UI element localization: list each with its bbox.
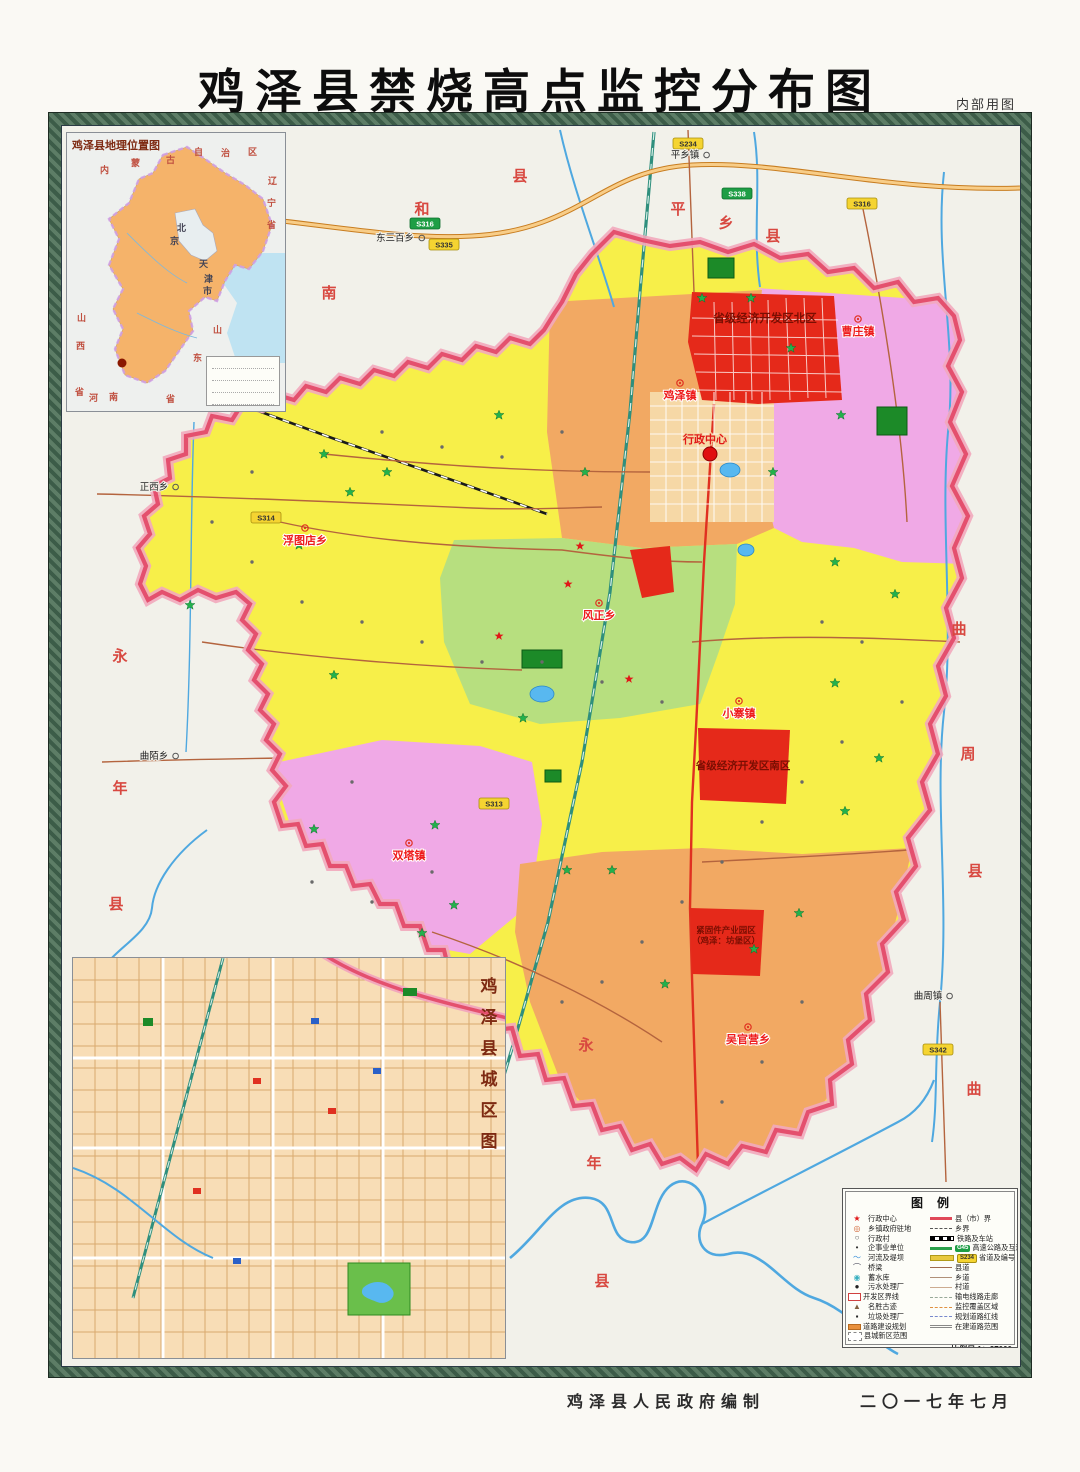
legend-item: 县（市）界	[930, 1214, 1012, 1224]
township-seat-dot	[857, 318, 859, 320]
inset-region-char: 河	[89, 391, 98, 404]
legend-item-label: 桥梁	[868, 1263, 882, 1273]
legend-line-sample	[930, 1247, 952, 1251]
neighbor-county-char: 永	[111, 647, 128, 665]
neighbor-county-char: 平	[670, 201, 685, 218]
external-town-label: 曲周镇	[914, 990, 943, 1002]
inset-region-char: 省	[166, 392, 175, 405]
village-dot	[300, 600, 303, 603]
inset-region-char: 京	[170, 234, 179, 247]
village-dot	[720, 860, 723, 863]
legend-item: 在建道路范围	[930, 1322, 1012, 1332]
ornate-border-frame: S316S338S335S316S314S234S342S313 鸡泽镇曹庄镇浮…	[48, 112, 1032, 1378]
inset-region-char: 市	[203, 284, 212, 297]
inset-region-char: 东	[193, 351, 202, 364]
inset-region-char: 省	[75, 385, 84, 398]
legend-item-label: 在建道路范围	[955, 1322, 998, 1332]
legend-item: ◎乡镇政府驻地	[848, 1224, 930, 1234]
city-inset-title-char: 县	[479, 1034, 499, 1059]
map-sheet: 鸡泽县禁烧高点监控分布图 内部用图	[0, 0, 1080, 1472]
village-dot	[430, 870, 433, 873]
inset-region-char: 北	[177, 221, 186, 234]
village-dot	[640, 940, 643, 943]
legend-symbol-icon: ●	[848, 1283, 866, 1291]
inset-legend	[206, 356, 280, 406]
village-dot	[380, 430, 383, 433]
township-label: 吴官营乡	[726, 1032, 770, 1046]
city-inset-title-char: 城	[479, 1065, 499, 1090]
village-dot	[800, 780, 803, 783]
village-dot	[900, 700, 903, 703]
city-inset-title-char: 鸡	[479, 972, 499, 997]
legend-line-sample	[930, 1277, 952, 1278]
legend-item-label: 乡镇政府驻地	[868, 1224, 911, 1234]
legend-item-label: 蓄水库	[868, 1273, 890, 1283]
legend-symbol-icon: ◉	[848, 1274, 866, 1282]
village-dot	[660, 700, 663, 703]
legend-line-sample	[930, 1255, 954, 1261]
inset-region-char: 内	[100, 163, 109, 176]
village-dot	[840, 740, 843, 743]
legend-item-label: 高速公路及互通	[972, 1243, 1018, 1253]
village-dot	[250, 560, 253, 563]
legend-item: ▪垃圾处理厂	[848, 1312, 930, 1322]
neighbor-county-char: 县	[108, 896, 123, 913]
township-seat-dot	[304, 527, 306, 529]
road-number-text: S338	[728, 190, 746, 199]
legend-symbol-shape	[848, 1332, 862, 1341]
legend-item: G45高速公路及互通	[930, 1243, 1012, 1253]
village-dot	[680, 900, 683, 903]
legend-line-sample	[930, 1287, 952, 1288]
external-town-label: 平乡镇	[671, 149, 700, 161]
legend-item: 乡界	[930, 1224, 1012, 1234]
legend-line-sample	[930, 1236, 954, 1241]
neighbor-county-char: 县	[594, 1273, 609, 1290]
village-dot	[310, 880, 313, 883]
legend-symbol-icon: ▪	[848, 1313, 866, 1321]
township-label: 浮图店乡	[283, 533, 327, 547]
inset-region-char: 区	[248, 145, 257, 158]
legend-item: ▲名胜古迹	[848, 1302, 930, 1312]
inset-region-char: 西	[76, 339, 85, 352]
neighbor-county-char: 永	[577, 1036, 594, 1054]
legend-line-sample	[930, 1316, 952, 1317]
village-dot	[560, 430, 563, 433]
legend-item: •企事业单位	[848, 1243, 930, 1253]
road-number-text: S316	[416, 220, 434, 229]
legend-line-sample	[930, 1307, 952, 1308]
zone-label: 紧固件产业园区（鸡泽：坊堡区）	[692, 925, 760, 946]
legend-item-label: 污水处理厂	[868, 1282, 904, 1292]
neighbor-county-char: 曲	[966, 1080, 981, 1098]
legend-symbol-icon: ⌒	[848, 1264, 866, 1272]
legend-item: ⌒桥梁	[848, 1263, 930, 1273]
legend-item: 铁路及车站	[930, 1234, 1012, 1244]
neighbor-county-char: 年	[112, 779, 127, 797]
jize-location-marker	[118, 359, 127, 368]
legend-item-label: 铁路及车站	[957, 1234, 993, 1244]
inset-region-char: 辽	[268, 174, 277, 187]
credit-publisher: 鸡泽县人民政府编制	[567, 1388, 765, 1412]
legend-item: 〜河流及堤坝	[848, 1253, 930, 1263]
legend-line-sample	[930, 1228, 952, 1229]
legend-item: ○行政村	[848, 1234, 930, 1244]
inset-region-char: 山	[213, 323, 222, 336]
legend-item-label: 省道及编号	[979, 1253, 1015, 1263]
neighbor-county-char: 乡	[718, 214, 733, 232]
legend-item: ★行政中心	[848, 1214, 930, 1224]
legend-item-label: 县（市）界	[955, 1214, 991, 1224]
inset-region-char: 山	[77, 311, 86, 324]
credit-date: 二〇一七年七月	[860, 1388, 1014, 1412]
city-inset-map	[73, 958, 505, 1358]
credits: 鸡泽县人民政府编制 二〇一七年七月	[48, 1388, 1032, 1412]
neighbor-county-char: 县	[765, 228, 780, 245]
neighbor-county-char: 年	[586, 1154, 601, 1172]
internal-use-note: 内部用图	[956, 94, 1016, 113]
township-label: 风正乡	[583, 608, 616, 622]
village-dot	[860, 640, 863, 643]
village-dot	[600, 980, 603, 983]
legend-item-label: 县城新区范围	[864, 1331, 907, 1341]
legend-line-sample	[930, 1325, 952, 1328]
inset-region-char: 南	[109, 390, 118, 403]
legend-symbol-icon: •	[848, 1244, 866, 1252]
legend-item-label: 乡界	[955, 1224, 969, 1234]
township-seat-dot	[747, 1026, 749, 1028]
legend-symbol-icon: ★	[848, 1215, 866, 1223]
village-dot	[800, 1000, 803, 1003]
legend-line-sample	[930, 1267, 952, 1268]
village-dot	[420, 640, 423, 643]
legend-item-label: 乡道	[955, 1273, 969, 1283]
road-number-text: S314	[257, 514, 275, 523]
legend-item-label: 道路建设规划	[863, 1322, 906, 1332]
township-seat-dot	[738, 700, 740, 702]
legend-item: ●污水处理厂	[848, 1283, 930, 1293]
legend: 图例 ★行政中心◎乡镇政府驻地○行政村•企事业单位〜河流及堤坝⌒桥梁◉蓄水库●污…	[842, 1188, 1018, 1348]
neighbor-county-char: 和	[414, 201, 429, 218]
village-dot	[820, 620, 823, 623]
legend-item: 输电线路走廊	[930, 1292, 1012, 1302]
legend-line-sample	[930, 1217, 952, 1220]
legend-symbol-shape	[848, 1324, 861, 1330]
legend-item-label: 输电线路走廊	[955, 1292, 998, 1302]
village-dot	[760, 1060, 763, 1063]
village-dot	[600, 680, 603, 683]
legend-item: ◉蓄水库	[848, 1273, 930, 1283]
legend-item: 规划道路红线	[930, 1312, 1012, 1322]
township-seat-dot	[598, 602, 600, 604]
location-inset-title: 鸡泽县地理位置图	[72, 137, 160, 153]
admin-center-label: 行政中心	[682, 432, 727, 446]
township-seat-dot	[679, 382, 681, 384]
village-dot	[440, 445, 443, 448]
legend-item: S234省道及编号	[930, 1253, 1012, 1263]
township-label: 小寨镇	[722, 706, 756, 720]
legend-item: 道路建设规划	[848, 1322, 930, 1332]
village-dot	[480, 660, 483, 663]
road-number-text: S335	[435, 241, 453, 250]
legend-symbol-icon: ○	[848, 1234, 866, 1242]
external-town-label: 东三百乡	[376, 232, 414, 244]
village-dot	[720, 1100, 723, 1103]
village-dot	[370, 900, 373, 903]
neighbor-county-char: 县	[512, 168, 527, 185]
village-dot	[210, 520, 213, 523]
legend-item: 村道	[930, 1283, 1012, 1293]
inset-region-char: 治	[221, 146, 230, 159]
legend-item-label: 县道	[955, 1263, 969, 1273]
legend-item-label: 垃圾处理厂	[868, 1312, 904, 1322]
city-inset: 鸡泽县城区图	[72, 957, 506, 1359]
township-label: 双塔镇	[393, 848, 426, 862]
city-inset-title-char: 图	[479, 1127, 499, 1152]
neighbor-county-char: 曲	[951, 620, 966, 638]
legend-item-label: 监控覆盖区域	[955, 1302, 998, 1312]
legend-item-label: 行政村	[868, 1234, 890, 1244]
zone-label: 省级经济开发区南区	[695, 759, 791, 772]
external-town-label: 曲陌乡	[140, 751, 169, 762]
neighbor-county-char: 南	[321, 284, 336, 302]
road-number-text: S234	[679, 140, 697, 149]
township-seat-dot	[408, 842, 410, 844]
inset-region-char: 天	[199, 257, 208, 270]
neighbor-county-char: 周	[960, 746, 975, 763]
inset-region-char: 自	[194, 145, 203, 158]
legend-item: 开发区界线	[848, 1292, 930, 1302]
village-dot	[250, 470, 253, 473]
road-number-text: S313	[485, 800, 503, 809]
legend-item-label: 河流及堤坝	[868, 1253, 904, 1263]
legend-symbol-icon: 〜	[848, 1254, 866, 1262]
legend-symbol-icon: ▲	[848, 1303, 866, 1311]
city-inset-title-char: 区	[479, 1096, 499, 1121]
zone-label: 省级经济开发区北区	[712, 311, 817, 325]
village-dot	[500, 455, 503, 458]
legend-road-badge: G45	[955, 1245, 970, 1252]
county-seat-dot	[703, 447, 717, 461]
legend-symbol-shape	[848, 1293, 861, 1301]
legend-item-label: 开发区界线	[863, 1292, 899, 1302]
village-dot	[350, 780, 353, 783]
township-label: 曹庄镇	[842, 324, 875, 338]
inset-region-char: 蒙	[131, 156, 140, 169]
inset-region-char: 古	[166, 153, 175, 166]
village-dot	[540, 660, 543, 663]
legend-item: 县城新区范围	[848, 1332, 930, 1342]
legend-title: 图例	[848, 1194, 1012, 1211]
inset-region-char: 宁	[267, 196, 276, 209]
legend-symbol-icon: ◎	[848, 1225, 866, 1233]
road-number-text: S342	[929, 1046, 947, 1055]
neighbor-county-char: 县	[967, 863, 982, 880]
legend-item: 监控覆盖区域	[930, 1302, 1012, 1312]
legend-item-label: 名胜古迹	[868, 1302, 897, 1312]
location-inset: 鸡泽县地理位置图 内蒙古自治区辽宁省山西省河南省山东北京天津市	[66, 132, 286, 412]
legend-item-label: 企事业单位	[868, 1243, 904, 1253]
legend-line-sample	[930, 1297, 952, 1298]
city-inset-title-char: 泽	[479, 1003, 499, 1028]
main-map-area: S316S338S335S316S314S234S342S313 鸡泽镇曹庄镇浮…	[61, 125, 1021, 1367]
township-label: 鸡泽镇	[663, 388, 697, 402]
legend-item-label: 行政中心	[868, 1214, 897, 1224]
legend-scale: 比例尺 1：37000	[848, 1344, 1012, 1348]
inset-region-char: 省	[267, 218, 276, 231]
legend-item-label: 规划道路红线	[955, 1312, 998, 1322]
legend-item: 县道	[930, 1263, 1012, 1273]
legend-item-label: 村道	[955, 1282, 969, 1292]
legend-item: 乡道	[930, 1273, 1012, 1283]
external-town-label: 正西乡	[140, 482, 169, 493]
village-dot	[360, 620, 363, 623]
village-dot	[560, 1000, 563, 1003]
road-number-text: S316	[853, 200, 871, 209]
village-dot	[760, 820, 763, 823]
legend-road-badge: S234	[957, 1254, 977, 1263]
city-inset-title: 鸡泽县城区图	[479, 972, 499, 1158]
